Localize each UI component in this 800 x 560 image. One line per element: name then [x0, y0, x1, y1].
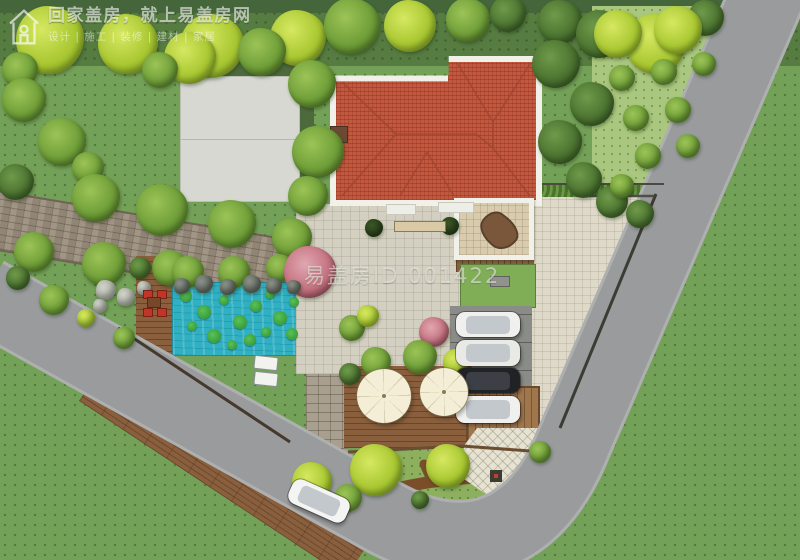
rock: [93, 299, 107, 313]
gate-lamp: [490, 470, 502, 482]
patio-chair: [143, 308, 153, 317]
entry-stoop: [386, 204, 416, 215]
rock: [117, 288, 135, 306]
tree: [538, 120, 582, 164]
car: [456, 312, 520, 337]
patio-table: [147, 297, 161, 308]
roof-ridges: [330, 56, 542, 206]
pool-lounger: [253, 371, 278, 387]
car-cabin: [466, 400, 510, 419]
lily-pad: [273, 311, 287, 325]
tree: [692, 52, 716, 76]
site-plan-rendering: 回家盖房，就上易盖房网 设计 | 施工 | 装修 | 建材 | 家居 易盖房ID…: [0, 0, 800, 560]
car-cabin: [466, 372, 510, 390]
tree: [2, 78, 46, 122]
lily-pad: [187, 321, 197, 331]
lily-pad: [261, 327, 271, 337]
house-roof: [330, 56, 542, 206]
tree: [288, 60, 336, 108]
garden-bench: [394, 221, 446, 232]
right-courtyard: [526, 190, 682, 456]
tree: [532, 40, 580, 88]
car-cabin: [466, 344, 510, 363]
pool-lounger: [253, 355, 278, 371]
lily-pad: [219, 295, 229, 305]
tree: [77, 309, 95, 327]
tree: [676, 134, 700, 158]
lily-pad: [207, 329, 221, 343]
lily-pad: [197, 305, 211, 319]
lily-pad: [244, 334, 256, 346]
car-cabin: [466, 316, 510, 334]
patio-umbrella: [357, 369, 411, 423]
tree: [142, 52, 178, 88]
patio-chair: [157, 308, 167, 317]
tree: [6, 266, 30, 290]
concrete-court: [180, 76, 300, 202]
lily-pad: [233, 315, 247, 329]
lily-pad: [289, 297, 299, 307]
lily-pad: [227, 340, 237, 350]
dining-table: [473, 206, 524, 256]
rock: [96, 280, 116, 300]
tree: [39, 285, 69, 315]
lawn-bench: [490, 276, 510, 287]
patio-umbrella: [420, 368, 468, 416]
car: [456, 340, 520, 366]
lily-pad: [286, 328, 298, 340]
entry-stoop: [438, 202, 474, 213]
lily-pad: [250, 300, 262, 312]
